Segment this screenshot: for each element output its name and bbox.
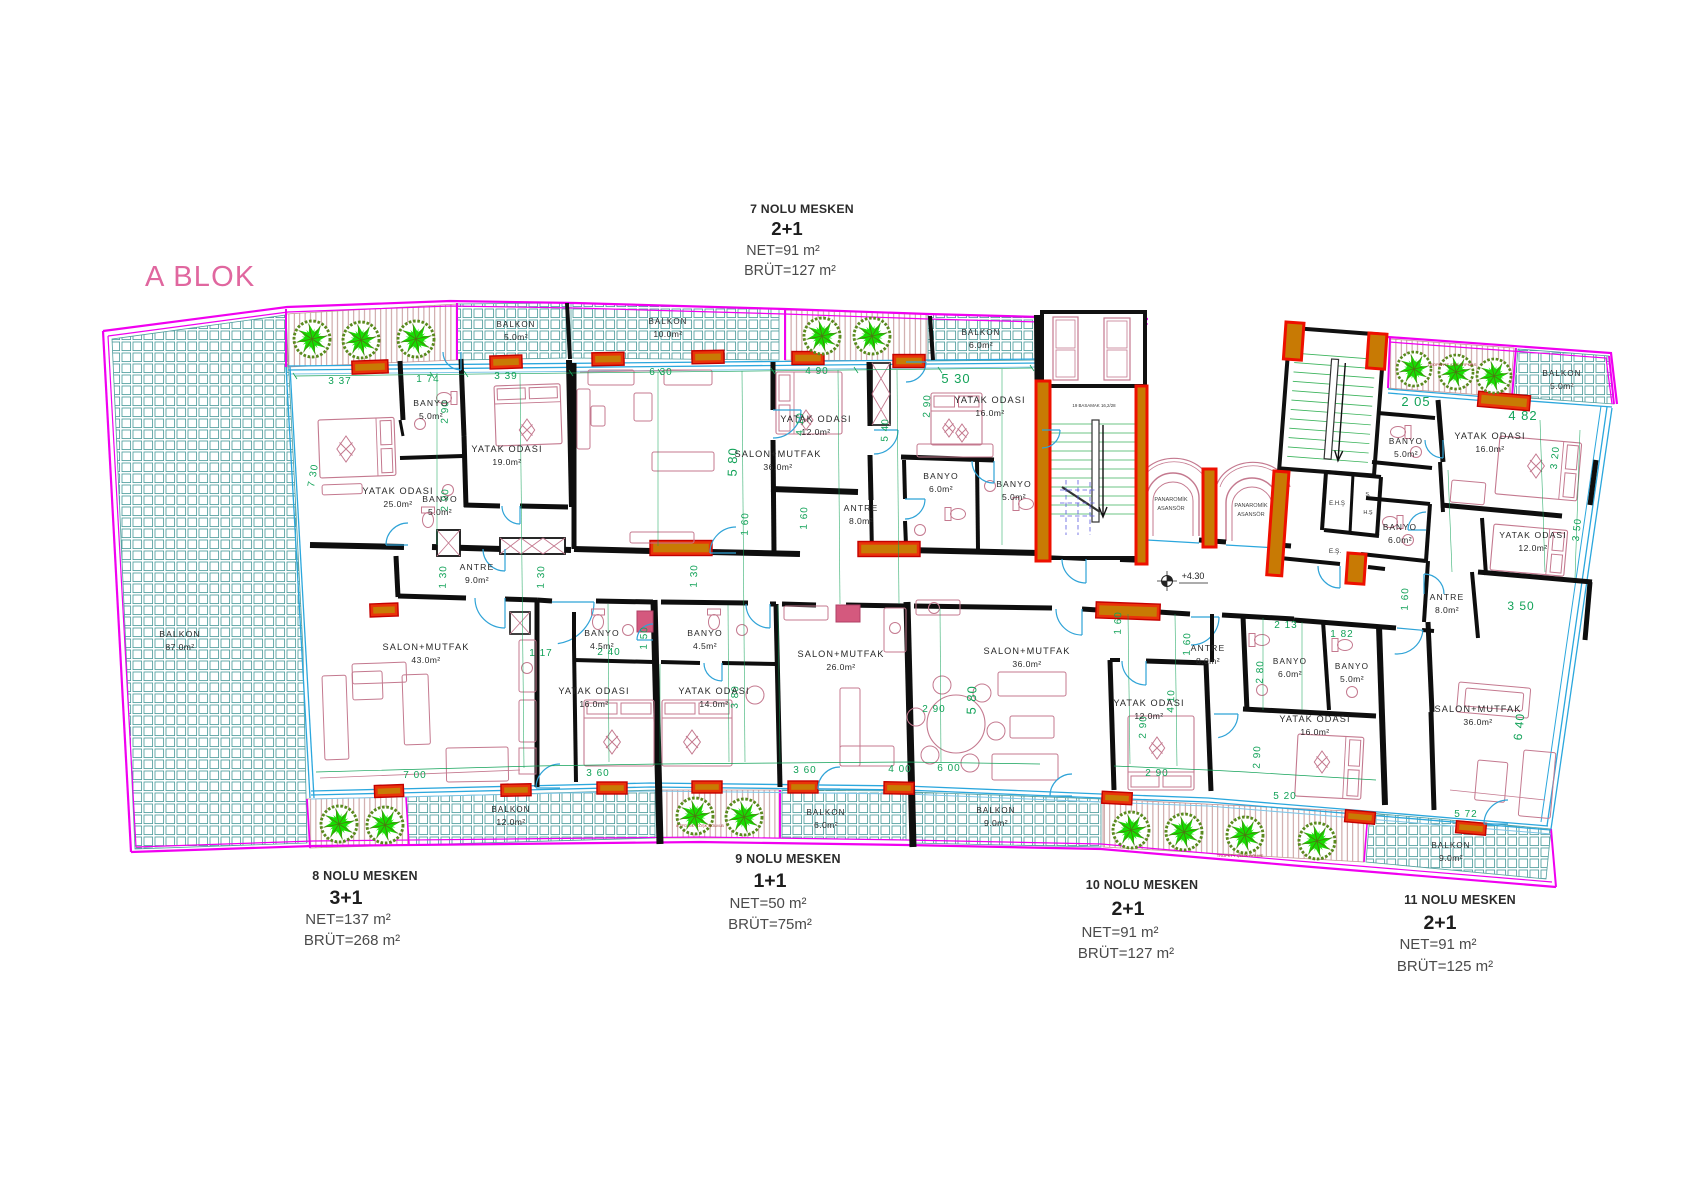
svg-text:2+1: 2+1 <box>1111 898 1144 920</box>
svg-text:E.Ş.: E.Ş. <box>1329 548 1341 555</box>
svg-text:1 60: 1 60 <box>740 512 752 536</box>
svg-text:36.0m²: 36.0m² <box>1463 717 1492 727</box>
svg-text:12.0m²: 12.0m² <box>801 427 830 437</box>
svg-text:NET=137 m²: NET=137 m² <box>305 911 390 928</box>
svg-text:E.H.Ş: E.H.Ş <box>1329 501 1345 507</box>
svg-text:11 NOLU MESKEN: 11 NOLU MESKEN <box>1404 893 1516 907</box>
svg-text:YATAK ODASI: YATAK ODASI <box>471 444 542 454</box>
svg-text:ANTRE: ANTRE <box>460 562 495 572</box>
svg-text:5.0m²: 5.0m² <box>1002 492 1026 502</box>
svg-text:SALON+MUTFAK: SALON+MUTFAK <box>984 646 1071 656</box>
svg-text:9 NOLU MESKEN: 9 NOLU MESKEN <box>735 852 840 866</box>
svg-text:3 37: 3 37 <box>328 376 351 387</box>
svg-text:10.0m²: 10.0m² <box>653 329 682 339</box>
svg-text:SALON+MUTFAK: SALON+MUTFAK <box>735 449 822 459</box>
svg-text:YATAK ODASI: YATAK ODASI <box>678 686 749 696</box>
svg-text:BALKON: BALKON <box>1542 369 1581 378</box>
svg-text:5 20: 5 20 <box>1273 791 1296 802</box>
svg-text:4 90: 4 90 <box>805 366 828 377</box>
svg-text:7 00: 7 00 <box>403 770 426 781</box>
svg-text:25.0m²: 25.0m² <box>383 499 412 509</box>
svg-text:BALKON: BALKON <box>976 806 1015 815</box>
svg-text:BANYO: BANYO <box>413 398 449 408</box>
svg-text:BRÜT=268 m²: BRÜT=268 m² <box>304 931 400 949</box>
svg-text:2+1: 2+1 <box>1423 912 1456 934</box>
svg-text:NET=91 m²: NET=91 m² <box>746 243 820 259</box>
svg-text:YATAK ODASI: YATAK ODASI <box>1113 698 1184 708</box>
svg-text:ANTRE: ANTRE <box>1191 643 1226 653</box>
svg-text:2 90: 2 90 <box>1252 745 1264 769</box>
svg-text:YATAK ODASI: YATAK ODASI <box>780 414 851 424</box>
svg-text:26.0m²: 26.0m² <box>826 662 855 672</box>
svg-text:36.0m²: 36.0m² <box>1012 659 1041 669</box>
svg-text:87.0m²: 87.0m² <box>165 642 194 652</box>
svg-text:1 30: 1 30 <box>438 565 450 589</box>
svg-text:BRÜT=127 m²: BRÜT=127 m² <box>744 261 836 279</box>
svg-text:BALKON: BALKON <box>496 320 535 329</box>
svg-text:5.0m²: 5.0m² <box>428 507 452 517</box>
svg-text:YATAK ODASI: YATAK ODASI <box>1279 714 1350 724</box>
svg-text:2 90: 2 90 <box>1145 768 1168 779</box>
svg-text:TROPKHTF ÇSR TRPMBS: TROPKHTF ÇSR TRPMBS <box>1428 362 1477 367</box>
svg-text:43.0m²: 43.0m² <box>411 655 440 665</box>
svg-text:BANYO: BANYO <box>1335 662 1369 671</box>
svg-text:BANYO: BANYO <box>923 471 959 481</box>
svg-text:PANAROMİK: PANAROMİK <box>1154 496 1187 503</box>
svg-text:5 80: 5 80 <box>963 685 979 715</box>
svg-text:1+1: 1+1 <box>753 870 786 892</box>
svg-text:BANYO: BANYO <box>422 494 458 504</box>
svg-text:NET=91 m²: NET=91 m² <box>1399 936 1476 953</box>
svg-text:16.0m²: 16.0m² <box>1475 444 1504 454</box>
svg-text:TROPKTY ÇELİK BÖLME: TROPKTY ÇELİK BÖLME <box>1217 853 1264 858</box>
svg-text:YATAK ODASI: YATAK ODASI <box>1454 431 1525 441</box>
svg-text:BALKON: BALKON <box>961 328 1000 337</box>
svg-text:BANYO: BANYO <box>584 628 620 638</box>
svg-text:5.0m²: 5.0m² <box>419 411 443 421</box>
svg-text:3 60: 3 60 <box>586 768 609 779</box>
svg-text:SALON+MUTFAK: SALON+MUTFAK <box>1435 704 1522 714</box>
svg-text:6 40: 6 40 <box>1511 712 1528 741</box>
svg-text:6.0m²: 6.0m² <box>814 820 838 830</box>
svg-text:1 17: 1 17 <box>529 648 552 659</box>
svg-text:BANYO: BANYO <box>1389 437 1423 446</box>
svg-text:1 82: 1 82 <box>1330 629 1353 640</box>
svg-text:BALKON: BALKON <box>806 808 845 817</box>
svg-text:5.0m²: 5.0m² <box>504 332 528 342</box>
svg-text:BRÜT=125 m²: BRÜT=125 m² <box>1397 957 1493 975</box>
svg-text:ASANSÖR: ASANSÖR <box>1157 505 1184 512</box>
svg-text:+4.30: +4.30 <box>1182 571 1205 581</box>
svg-text:3 39: 3 39 <box>494 371 517 382</box>
svg-text:16.0m²: 16.0m² <box>579 699 608 709</box>
svg-text:1 74: 1 74 <box>416 374 439 385</box>
svg-text:A BLOK: A BLOK <box>145 261 255 293</box>
svg-text:8.0m²: 8.0m² <box>1196 656 1220 666</box>
svg-text:12.0m²: 12.0m² <box>496 817 525 827</box>
svg-text:BALKON: BALKON <box>491 805 530 814</box>
svg-text:BANYO: BANYO <box>996 479 1032 489</box>
svg-text:ANTRE: ANTRE <box>844 503 879 513</box>
svg-text:BANYO: BANYO <box>1383 523 1417 532</box>
svg-text:19.0m²: 19.0m² <box>492 457 521 467</box>
svg-text:H.Ş: H.Ş <box>1363 510 1373 516</box>
svg-text:16.0m²: 16.0m² <box>975 408 1004 418</box>
svg-text:8 TFD 547 KÖŞK BÖLM-B: 8 TFD 547 KÖŞK BÖLM-B <box>676 823 724 828</box>
svg-text:6.0m²: 6.0m² <box>929 484 953 494</box>
svg-text:SALON+MUTFAK: SALON+MUTFAK <box>798 649 885 659</box>
svg-text:12.0m²: 12.0m² <box>1134 711 1163 721</box>
svg-text:PANAROMİK: PANAROMİK <box>1234 502 1267 509</box>
svg-text:BRÜT=127 m²: BRÜT=127 m² <box>1078 944 1174 962</box>
svg-text:NET=91 m²: NET=91 m² <box>1081 924 1158 941</box>
svg-text:4 82: 4 82 <box>1508 408 1537 423</box>
svg-text:4 00: 4 00 <box>888 764 911 775</box>
svg-text:2 90: 2 90 <box>922 704 945 715</box>
svg-text:BALKON: BALKON <box>159 629 200 639</box>
svg-text:3+1: 3+1 <box>329 887 362 909</box>
svg-text:1 50: 1 50 <box>639 626 651 650</box>
svg-text:12.0m²: 12.0m² <box>1518 543 1547 553</box>
svg-text:2+1: 2+1 <box>771 218 802 239</box>
svg-text:9.0m²: 9.0m² <box>1439 853 1463 863</box>
svg-text:2 90: 2 90 <box>922 394 934 418</box>
svg-text:5 30: 5 30 <box>941 371 970 386</box>
svg-text:SALON+MUTFAK: SALON+MUTFAK <box>383 642 470 652</box>
svg-text:5 72: 5 72 <box>1454 809 1477 820</box>
svg-text:8 NOLU MESKEN: 8 NOLU MESKEN <box>312 869 417 883</box>
svg-text:BANYO: BANYO <box>687 628 723 638</box>
svg-text:2 05: 2 05 <box>1401 394 1430 409</box>
svg-text:1 60: 1 60 <box>1400 587 1412 611</box>
svg-text:ASANSÖR: ASANSÖR <box>1237 511 1264 518</box>
svg-text:19 BASAMAK 16,2/28: 19 BASAMAK 16,2/28 <box>1072 403 1116 408</box>
svg-text:5 40: 5 40 <box>880 418 892 442</box>
svg-text:NET=50 m²: NET=50 m² <box>729 895 806 912</box>
svg-text:6 30: 6 30 <box>649 367 672 378</box>
svg-text:9.0m²: 9.0m² <box>465 575 489 585</box>
svg-text:6.0m²: 6.0m² <box>1388 535 1412 545</box>
svg-text:1 30: 1 30 <box>689 564 701 588</box>
svg-text:BANYO: BANYO <box>1273 657 1307 666</box>
svg-text:6.0m²: 6.0m² <box>1278 669 1302 679</box>
svg-text:YATAK ODASI: YATAK ODASI <box>954 395 1025 405</box>
svg-text:1 60: 1 60 <box>799 506 811 530</box>
svg-text:16.0m²: 16.0m² <box>1300 727 1329 737</box>
svg-text:4.5m²: 4.5m² <box>590 641 614 651</box>
svg-text:6 00: 6 00 <box>937 763 960 774</box>
svg-text:7 NOLU MESKEN: 7 NOLU MESKEN <box>750 202 854 216</box>
svg-text:3 60: 3 60 <box>793 765 816 776</box>
svg-text:8.0m²: 8.0m² <box>849 516 873 526</box>
svg-text:36.0m²: 36.0m² <box>763 462 792 472</box>
svg-text:5.0m²: 5.0m² <box>1394 449 1418 459</box>
svg-text:5.0m²: 5.0m² <box>1550 381 1574 391</box>
svg-text:YATAK ODASI: YATAK ODASI <box>1499 530 1567 540</box>
svg-text:2 13: 2 13 <box>1274 620 1297 631</box>
svg-text:1 60: 1 60 <box>1113 611 1125 635</box>
svg-text:8.0m²: 8.0m² <box>1435 605 1459 615</box>
svg-text:BALKON: BALKON <box>1431 841 1470 850</box>
svg-text:14.0m²: 14.0m² <box>699 699 728 709</box>
svg-text:10 NOLU MESKEN: 10 NOLU MESKEN <box>1086 878 1199 892</box>
svg-text:YATAK ODASI: YATAK ODASI <box>558 686 629 696</box>
svg-text:BALKON: BALKON <box>648 317 687 326</box>
svg-text:5.0m²: 5.0m² <box>1340 674 1364 684</box>
svg-text:ANTRE: ANTRE <box>1430 592 1465 602</box>
svg-text:BRÜT=75m²: BRÜT=75m² <box>728 915 812 933</box>
svg-text:3 50: 3 50 <box>1507 599 1534 613</box>
svg-text:9.0m²: 9.0m² <box>984 818 1008 828</box>
svg-text:4.5m²: 4.5m² <box>693 641 717 651</box>
svg-text:2 80: 2 80 <box>1255 660 1267 684</box>
svg-text:1 30: 1 30 <box>536 565 548 589</box>
svg-text:6.0m²: 6.0m² <box>969 340 993 350</box>
